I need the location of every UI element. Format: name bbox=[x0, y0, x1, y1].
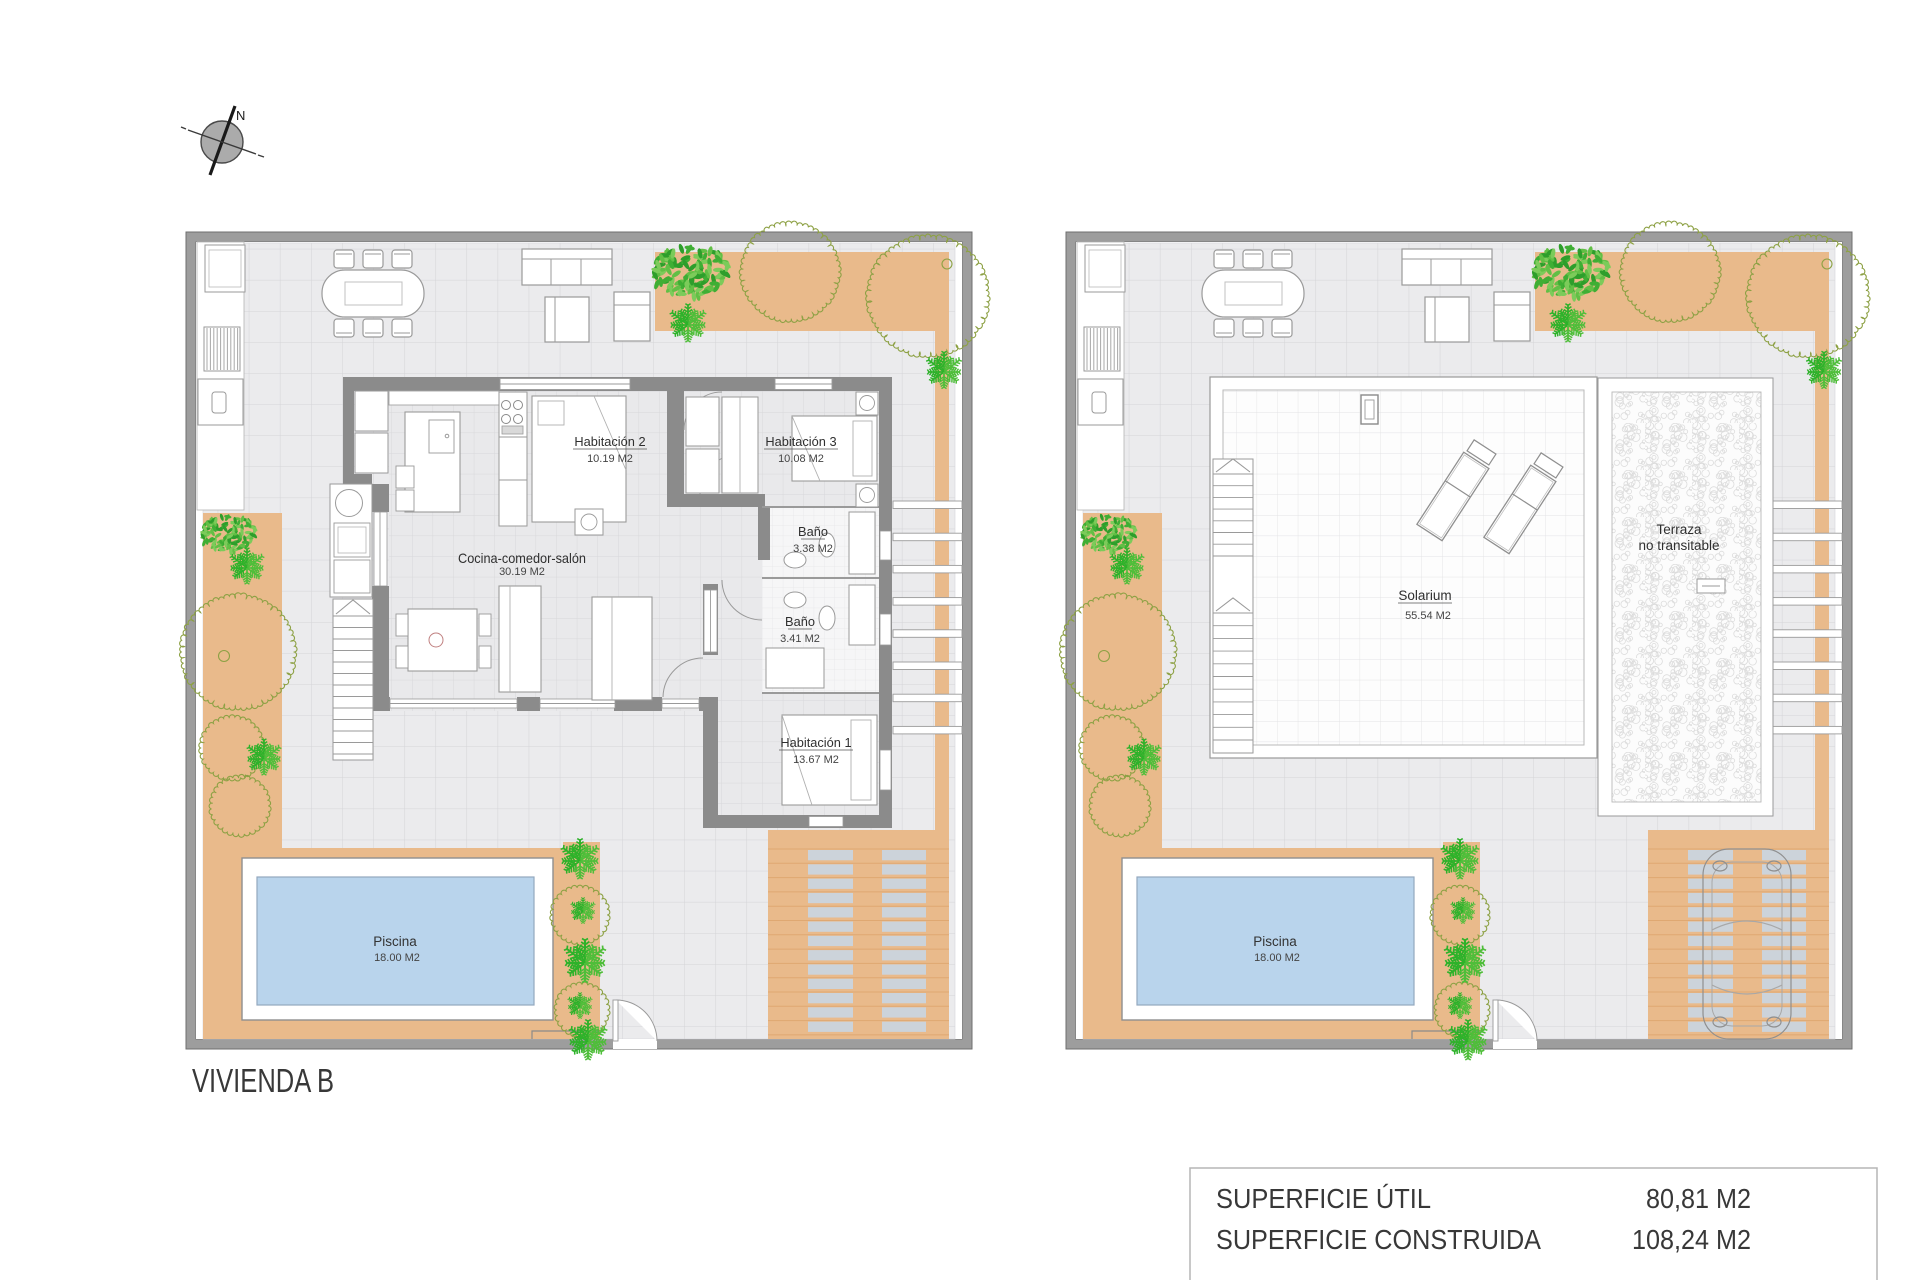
svg-text:13.67 M2: 13.67 M2 bbox=[793, 754, 839, 766]
svg-text:Solarium: Solarium bbox=[1398, 588, 1451, 603]
svg-text:Habitación 2: Habitación 2 bbox=[574, 434, 645, 449]
svg-text:no transitable: no transitable bbox=[1638, 538, 1719, 553]
svg-text:10.08 M2: 10.08 M2 bbox=[778, 453, 824, 465]
svg-text:55.54 M2: 55.54 M2 bbox=[1405, 610, 1451, 622]
svg-text:80,81 M2: 80,81 M2 bbox=[1646, 1183, 1751, 1214]
svg-text:Cocina-comedor-salón: Cocina-comedor-salón bbox=[458, 551, 586, 566]
svg-text:SUPERFICIE CONSTRUIDA: SUPERFICIE CONSTRUIDA bbox=[1216, 1224, 1542, 1255]
svg-text:10.19 M2: 10.19 M2 bbox=[587, 453, 633, 465]
svg-text:3.41 M2: 3.41 M2 bbox=[780, 633, 820, 645]
svg-text:Terraza: Terraza bbox=[1656, 522, 1702, 537]
svg-text:Habitación 1: Habitación 1 bbox=[780, 735, 851, 750]
svg-text:Baño: Baño bbox=[798, 524, 828, 539]
svg-text:Habitación 3: Habitación 3 bbox=[765, 434, 836, 449]
svg-text:N: N bbox=[236, 108, 245, 123]
svg-text:Baño: Baño bbox=[785, 614, 815, 629]
svg-text:SUPERFICIE ÚTIL: SUPERFICIE ÚTIL bbox=[1216, 1183, 1431, 1214]
svg-text:108,24 M2: 108,24 M2 bbox=[1632, 1224, 1751, 1255]
svg-text:30.19 M2: 30.19 M2 bbox=[499, 566, 545, 578]
svg-text:3.38 M2: 3.38 M2 bbox=[793, 543, 833, 555]
svg-text:VIVIENDA B: VIVIENDA B bbox=[192, 1062, 334, 1099]
